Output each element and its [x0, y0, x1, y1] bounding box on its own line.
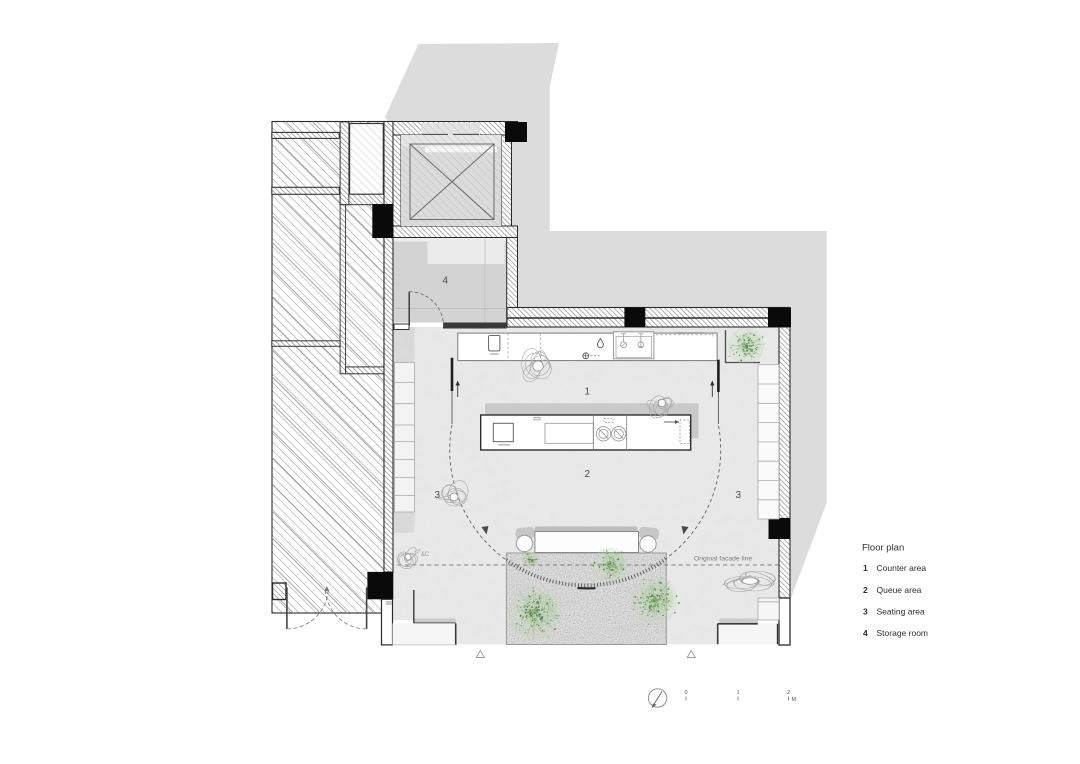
svg-text:1: 1: [863, 563, 868, 573]
svg-text:4: 4: [443, 276, 449, 287]
svg-text:3: 3: [736, 490, 742, 501]
svg-text:Seating area: Seating area: [877, 606, 925, 616]
svg-text:4: 4: [863, 628, 868, 638]
svg-text:&C: &C: [421, 552, 430, 558]
svg-text:1: 1: [737, 690, 740, 696]
svg-text:Queue area: Queue area: [877, 585, 922, 595]
svg-text:Storage room: Storage room: [877, 628, 929, 638]
svg-text:Original facade line: Original facade line: [694, 556, 752, 563]
svg-text:Counter area: Counter area: [877, 563, 927, 573]
svg-text:original counter line: original counter line: [676, 331, 704, 335]
svg-text:2: 2: [863, 585, 868, 595]
svg-text:2: 2: [585, 469, 591, 480]
svg-text:1: 1: [585, 387, 591, 398]
svg-text:2: 2: [787, 690, 790, 696]
svg-text:3: 3: [863, 606, 868, 616]
svg-text:3: 3: [435, 490, 441, 501]
svg-text:0: 0: [685, 690, 688, 696]
svg-text:Floor plan: Floor plan: [862, 543, 904, 554]
svg-text:M: M: [792, 697, 797, 703]
